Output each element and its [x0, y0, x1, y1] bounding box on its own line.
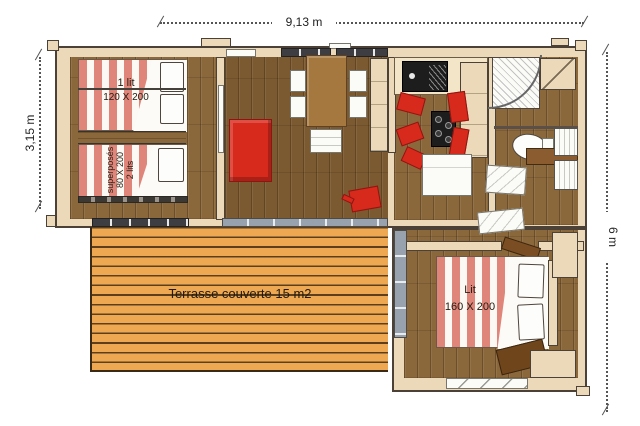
bed-rail [78, 196, 188, 203]
corner-post [47, 40, 59, 51]
bunk-bed-label-line1: superposés [105, 141, 115, 199]
double-bed-label-line1: Lit [432, 284, 508, 296]
bunk-bed-label-line3: 2 lits [125, 141, 135, 199]
bedroom-left-south-window [92, 218, 189, 227]
sofa [229, 119, 272, 182]
dimension-depth-left-label: 3,15 m [23, 105, 37, 161]
dimension-line-top [160, 22, 584, 24]
dimension-line-left [39, 57, 41, 209]
faucet [409, 73, 415, 79]
living-south-sliding-door [222, 218, 388, 227]
chair [349, 70, 367, 92]
terrace-label: Terrasse couverte 15 m2 [130, 287, 350, 302]
hall-cabinet [485, 165, 527, 196]
roof-vent [201, 38, 231, 47]
corner-post [575, 40, 587, 51]
double-bed-label-line2: 160 X 200 [432, 301, 508, 313]
bedroom-right-wall-segment [404, 241, 502, 251]
dimension-width-label: 9,13 m [272, 15, 336, 29]
corner-post [46, 215, 56, 227]
roof-vent [551, 38, 569, 46]
bathroom-cabinet [540, 58, 576, 90]
living-top-window [226, 49, 256, 57]
bedroom-right-terrace-door [394, 230, 407, 338]
bunk-bed-label-line2: 80 X 200 [115, 141, 125, 199]
single-bed-label: 1 lit 120 X 200 [94, 77, 158, 104]
dresser-body [530, 350, 576, 378]
burner [435, 116, 442, 123]
single-bed-label-line1: 1 lit [94, 77, 158, 89]
radiator [554, 128, 578, 156]
pillow [517, 303, 545, 340]
bedroom-right-window [446, 378, 528, 389]
radiator [554, 160, 578, 190]
dining-table [306, 55, 347, 127]
nightstand [552, 232, 578, 278]
floor-plan: 9,13 m 3,15 m 6 m Terrasse couverte 15 m… [0, 0, 640, 426]
fridge [422, 154, 472, 196]
burner [435, 130, 442, 137]
chair [290, 96, 306, 118]
pillow [158, 148, 184, 182]
bench [310, 129, 342, 153]
single-bed-label-line2: 120 X 200 [94, 92, 158, 103]
kitchen-sink [402, 61, 448, 92]
bunk-bed-label: superposés 80 X 200 2 lits [105, 141, 139, 199]
double-bed-label: Lit 160 X 200 [432, 284, 508, 314]
pillow [160, 94, 184, 124]
corner-post [576, 386, 590, 396]
pillow [517, 264, 544, 299]
bedroom-left-door [218, 85, 224, 153]
dimension-depth-right-label: 6 m [606, 212, 620, 262]
chair [290, 70, 306, 92]
sink-drainer [429, 65, 446, 90]
storage-cabinet [370, 58, 388, 152]
chair [349, 96, 367, 118]
